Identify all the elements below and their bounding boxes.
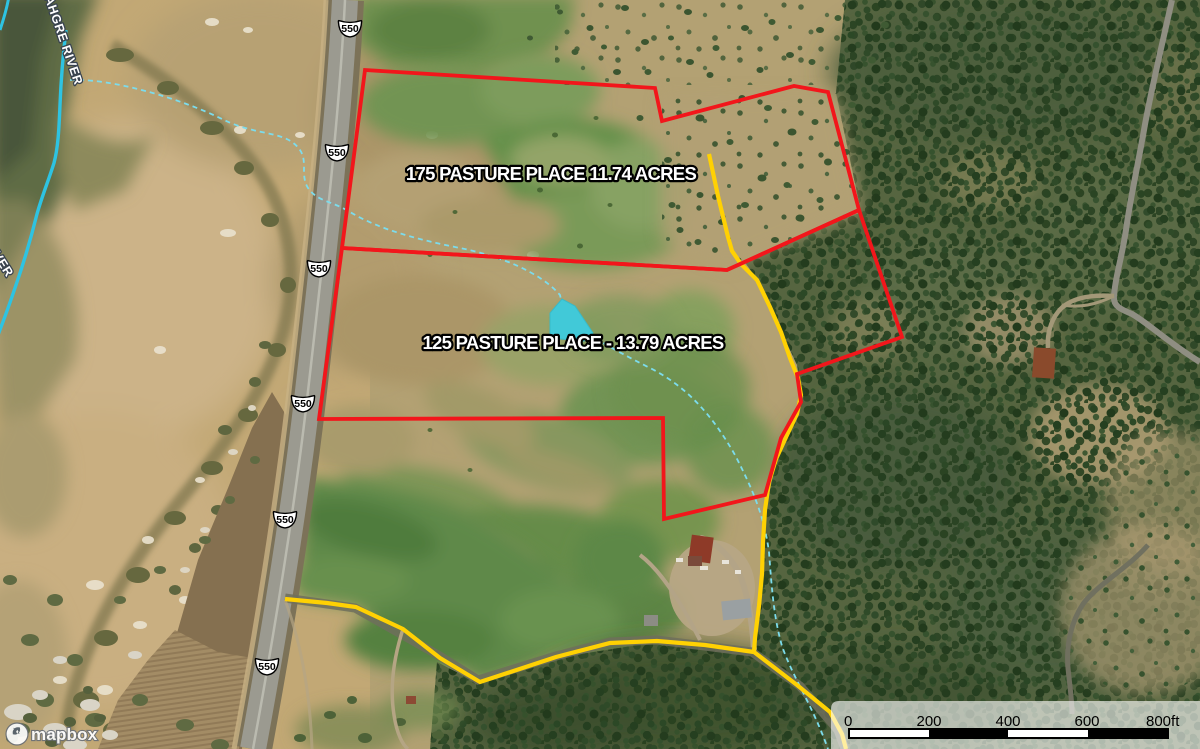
- svg-text:125 PASTURE PLACE - 13.79 ACRE: 125 PASTURE PLACE - 13.79 ACRES: [422, 332, 723, 353]
- svg-text:400: 400: [995, 713, 1020, 730]
- svg-text:200: 200: [916, 713, 941, 730]
- svg-text:550: 550: [258, 661, 276, 673]
- svg-text:0: 0: [844, 713, 852, 730]
- svg-text:550: 550: [294, 398, 312, 410]
- svg-text:mapbox: mapbox: [31, 725, 98, 744]
- svg-text:550: 550: [328, 147, 346, 159]
- svg-text:550: 550: [310, 263, 328, 275]
- svg-text:175 PASTURE PLACE 11.74 ACRES: 175 PASTURE PLACE 11.74 ACRES: [406, 163, 697, 184]
- svg-text:550: 550: [276, 514, 294, 526]
- svg-text:600: 600: [1074, 713, 1099, 730]
- svg-text:800ft: 800ft: [1146, 713, 1180, 730]
- svg-text:550: 550: [341, 23, 359, 35]
